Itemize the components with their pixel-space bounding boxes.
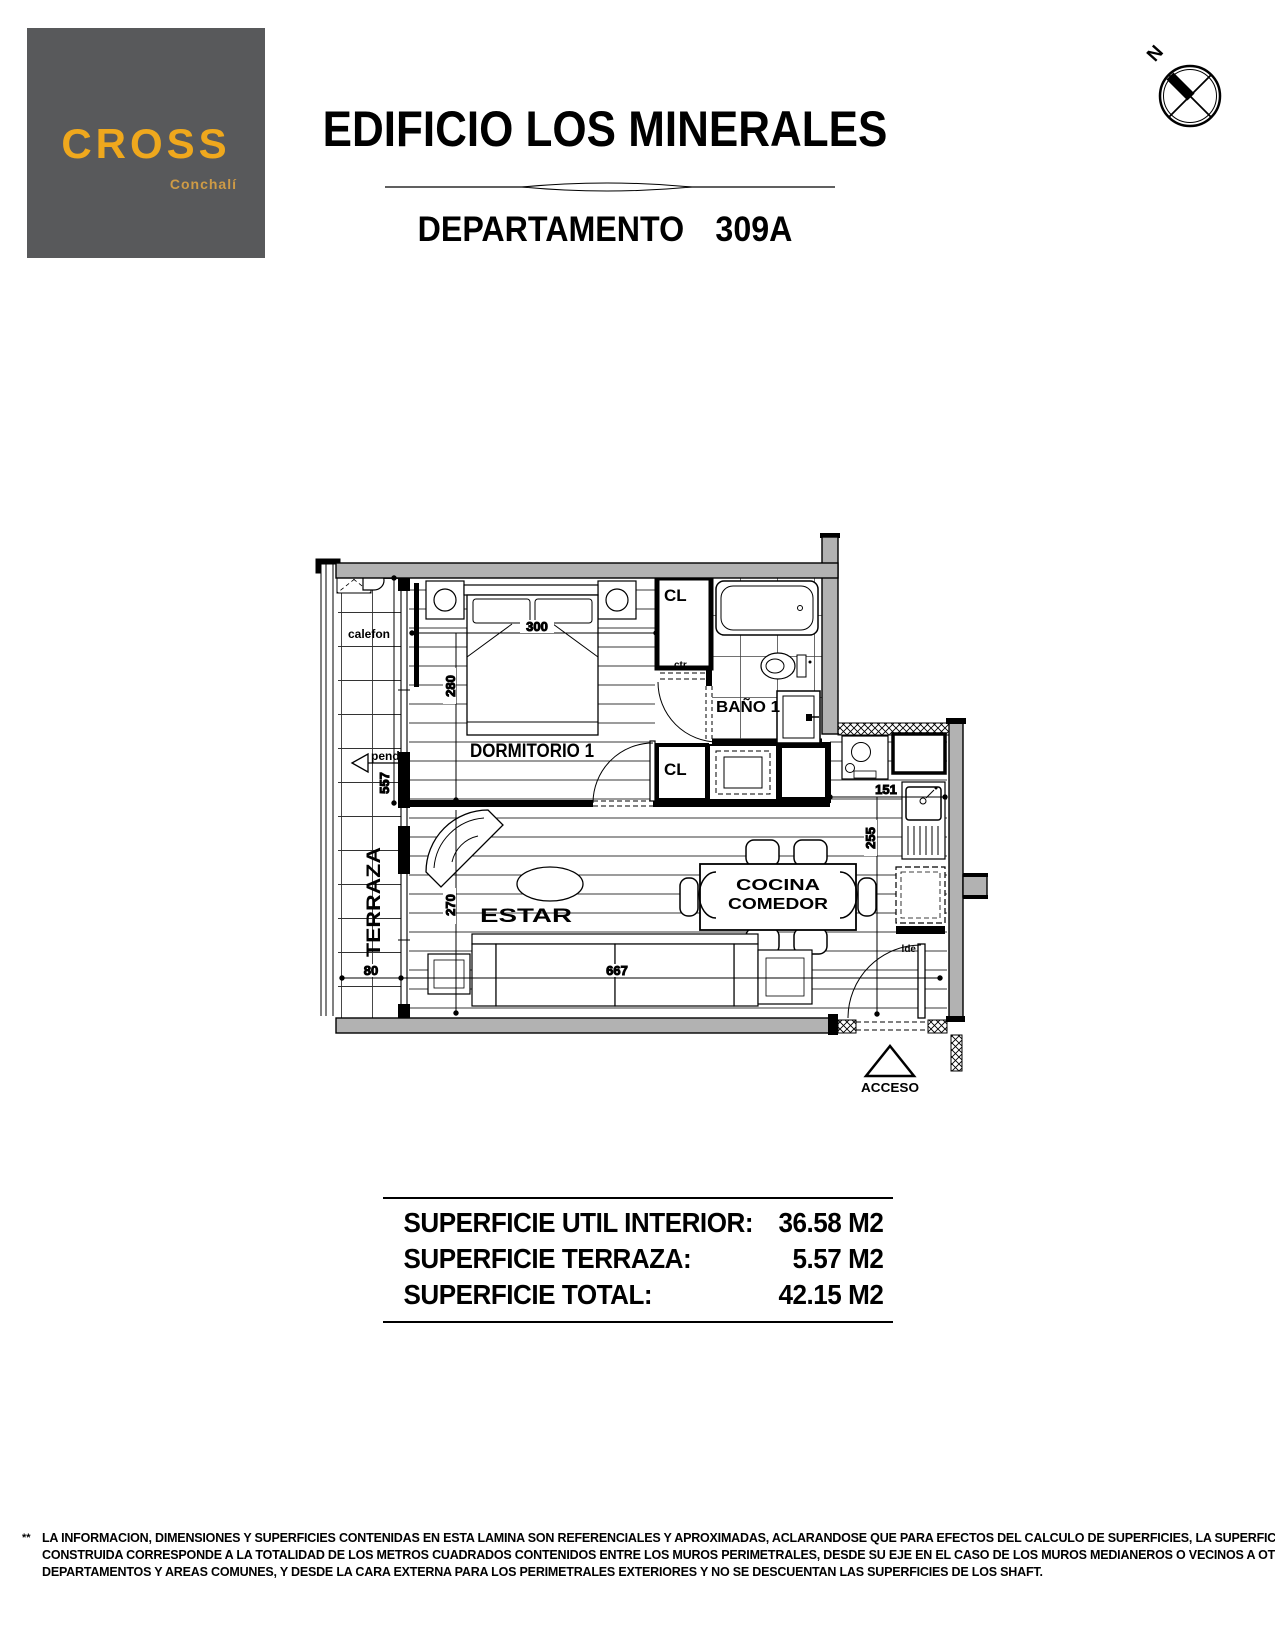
bed-headboard (464, 585, 598, 595)
chair (746, 840, 779, 866)
page-title: EDIFICIO LOS MINERALES (73, 100, 1138, 158)
dept-number: 309A (715, 210, 792, 249)
area-value: 5.57 M2 (793, 1241, 884, 1277)
compass-north-label: N (1143, 42, 1168, 66)
chair (794, 840, 827, 866)
vanity-sink (777, 691, 820, 743)
counter-edge (896, 926, 945, 934)
label-calefon: calefon (348, 627, 390, 641)
dept-label: DEPARTAMENTO (418, 210, 685, 249)
label-pend: pend. (371, 749, 403, 763)
label-dormitorio: DORMITORIO 1 (470, 741, 594, 762)
label-closet1: CL (664, 586, 687, 605)
svg-text:280: 280 (443, 675, 458, 697)
svg-text:255: 255 (863, 827, 878, 849)
pillow-left (473, 599, 530, 623)
shaft-box (779, 745, 828, 800)
svg-text:667: 667 (606, 963, 628, 978)
area-label: SUPERFICIE TOTAL: (403, 1277, 652, 1313)
svg-text:270: 270 (443, 894, 458, 916)
coffee-table (517, 867, 583, 901)
disclaimer-line-2: CONSTRUIDA CORRESPONDE A LA TOTALIDAD DE… (42, 1547, 1257, 1564)
svg-text:300: 300 (526, 619, 548, 634)
disclaimer-line-1: LA INFORMACION, DIMENSIONES Y SUPERFICIE… (42, 1530, 1257, 1547)
title-divider (380, 175, 840, 199)
floorplan-sheet: { "header": { "logo": { "brand": "CROSS"… (0, 0, 1275, 1650)
label-estar: ESTAR (480, 906, 572, 927)
area-value: 36.58 M2 (778, 1205, 883, 1241)
north-compass: N (1130, 35, 1245, 150)
area-row-terraza: SUPERFICIE TERRAZA: 5.57 M2 (383, 1241, 893, 1277)
kitchen-sink (902, 782, 945, 859)
side-table-right (758, 950, 812, 1004)
dorm-door-leaf (650, 741, 655, 801)
access-marker: ACCESO (861, 1046, 919, 1095)
label-terraza: TERRAZA (364, 847, 385, 957)
label-lde: lde (902, 944, 917, 955)
chair-end-left (680, 878, 698, 916)
label-ctr: ctr (674, 660, 687, 671)
label-acceso: ACCESO (861, 1080, 919, 1095)
label-bano: BAÑO 1 (716, 696, 780, 716)
label-cocina: COCINA (736, 877, 821, 894)
lamp-right (606, 589, 628, 611)
label-closet2: CL (664, 760, 687, 779)
washing-machine (842, 736, 888, 779)
svg-text:151: 151 (875, 782, 897, 797)
area-row-util-interior: SUPERFICIE UTIL INTERIOR: 36.58 M2 (383, 1205, 893, 1241)
refrigerator (896, 867, 945, 923)
kitchen-cabinet (893, 734, 945, 773)
bath-door-swing (658, 682, 718, 742)
svg-text:557: 557 (377, 772, 392, 794)
unit-subtitle: DEPARTAMENTO309A (48, 210, 1161, 250)
entry-door-leaf (918, 944, 925, 1018)
side-table-left (428, 954, 470, 994)
disclaimer-marker: ** (22, 1532, 31, 1544)
access-triangle (866, 1046, 914, 1076)
floor-plan: 300 280 557 80 667 270 (300, 495, 1000, 1115)
disclaimer-text: LA INFORMACION, DIMENSIONES Y SUPERFICIE… (42, 1530, 1257, 1581)
brand-logo-location: Conchalí (170, 176, 237, 192)
area-row-total: SUPERFICIE TOTAL: 42.15 M2 (383, 1277, 893, 1313)
shower-box (709, 745, 777, 800)
area-value: 42.15 M2 (778, 1277, 883, 1313)
toilet (761, 653, 812, 679)
disclaimer-line-3: DEPARTAMENTOS Y AREAS COMUNES, Y DESDE L… (42, 1564, 1257, 1581)
chair-end-right (858, 878, 876, 916)
label-comedor: COMEDOR (728, 896, 829, 913)
area-label: SUPERFICIE UTIL INTERIOR: (403, 1205, 753, 1241)
svg-text:80: 80 (364, 963, 378, 978)
compass-needle (1170, 76, 1191, 97)
lamp-left (434, 589, 456, 611)
area-label: SUPERFICIE TERRAZA: (403, 1241, 691, 1277)
surface-areas-table: SUPERFICIE UTIL INTERIOR: 36.58 M2 SUPER… (383, 1197, 893, 1323)
